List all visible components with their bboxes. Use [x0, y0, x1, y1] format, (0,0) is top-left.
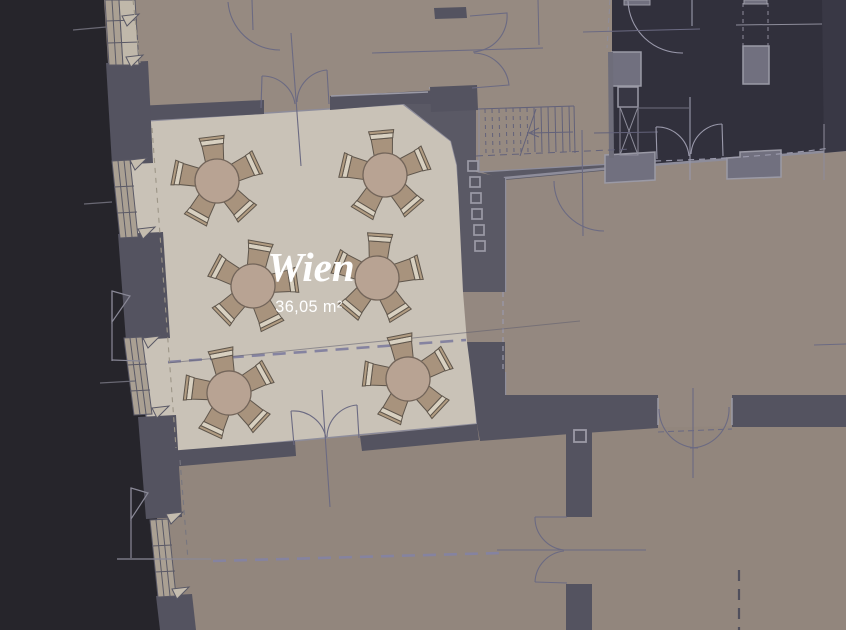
svg-text:Wien: Wien [267, 244, 354, 290]
svg-text:36,05 m²: 36,05 m² [275, 298, 343, 316]
